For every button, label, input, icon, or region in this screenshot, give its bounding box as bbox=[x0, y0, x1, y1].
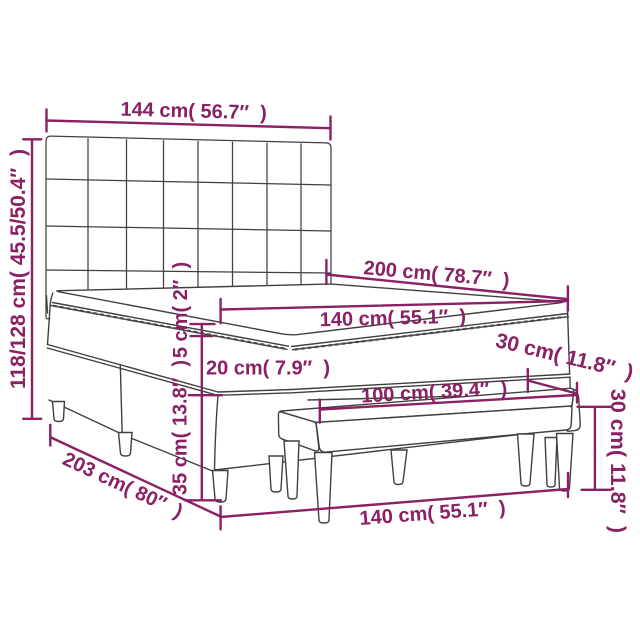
svg-text:5 cm( 2″ ): 5 cm( 2″ ) bbox=[170, 262, 192, 358]
svg-text:20 cm( 7.9″ ): 20 cm( 7.9″ ) bbox=[206, 358, 330, 380]
svg-text:30 cm( 11.8″ ): 30 cm( 11.8″ ) bbox=[606, 389, 630, 533]
svg-text:140 cm( 55.1″ ): 140 cm( 55.1″ ) bbox=[319, 306, 466, 332]
svg-text:35 cm( 13.8″ ): 35 cm( 13.8″ ) bbox=[170, 360, 192, 495]
svg-text:118/128 cm( 45.5/50.4″ ): 118/128 cm( 45.5/50.4″ ) bbox=[7, 149, 30, 389]
svg-text:144 cm( 56.7″ ): 144 cm( 56.7″ ) bbox=[120, 99, 267, 125]
